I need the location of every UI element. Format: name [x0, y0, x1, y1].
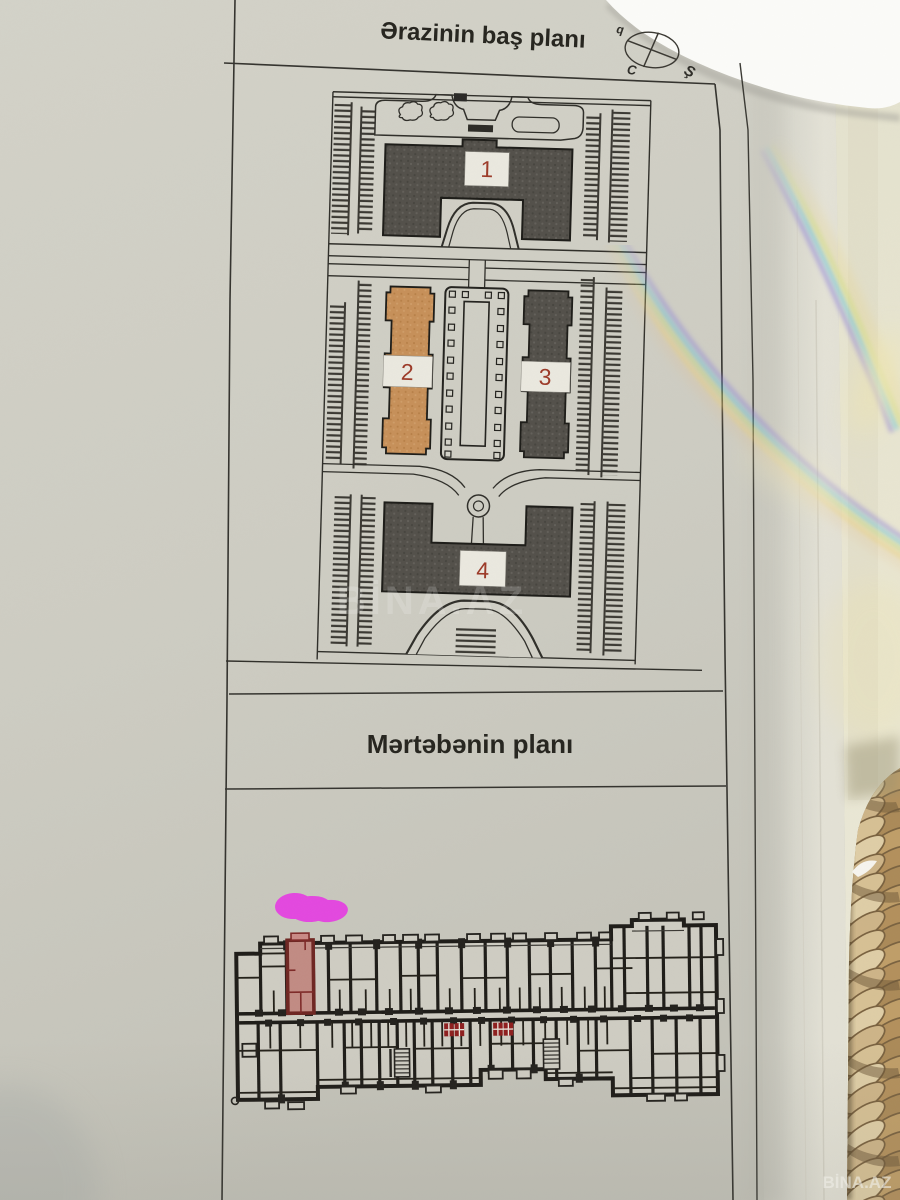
svg-text:BİNA.AZ: BİNA.AZ: [823, 1173, 892, 1192]
